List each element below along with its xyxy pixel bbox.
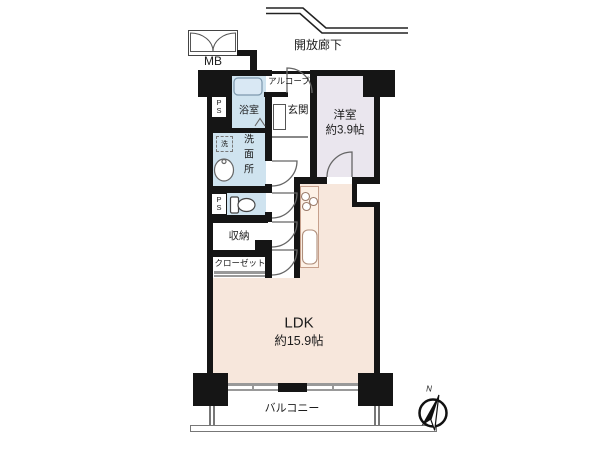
label-washroom: 洗面所 <box>243 133 255 178</box>
kitchen-sink-icon <box>303 230 318 264</box>
label-bathroom: 浴室 <box>239 105 259 117</box>
label-storage: 収納 <box>229 230 250 242</box>
label-western-room: 洋室 <box>334 109 357 122</box>
pipe-shaft-box: PS <box>211 96 227 118</box>
label-ldk-size: 約15.9帖 <box>274 334 323 348</box>
label-alcove: アルコーブ <box>268 77 310 87</box>
washbasin-icon <box>215 159 234 181</box>
label-entrance: 玄関 <box>288 104 309 116</box>
label-open-corridor: 開放廊下 <box>294 39 342 53</box>
washing-machine-label: 洗 <box>221 139 228 149</box>
corridor-canopy-line <box>266 8 408 33</box>
pipe-shaft-box: PS <box>211 193 227 215</box>
meter-box-doors-icon <box>191 33 236 52</box>
compass-icon <box>420 393 447 431</box>
pipe-shaft-label: PS <box>215 196 224 212</box>
bathtub-icon <box>234 78 262 95</box>
pipe-shaft-label: PS <box>215 99 224 115</box>
toilet-icon <box>231 197 256 213</box>
plan-symbols <box>0 0 600 450</box>
label-ldk: LDK <box>284 314 313 331</box>
stove-burners-icon <box>302 193 318 211</box>
label-meter-box: MB <box>204 55 222 69</box>
label-balcony: バルコニー <box>265 403 320 416</box>
label-compass-north: N <box>426 384 432 393</box>
label-closet: クローゼット <box>214 259 265 269</box>
label-western-room-size: 約3.9帖 <box>326 124 365 137</box>
floor-plan: PS PS 洗 MB 開放廊下 アルコーブ 浴室 玄関 洋室 約3.9帖 洗面所… <box>0 0 600 450</box>
bathroom-folding-door-icon <box>255 119 265 127</box>
washing-machine-box: 洗 <box>216 136 233 152</box>
